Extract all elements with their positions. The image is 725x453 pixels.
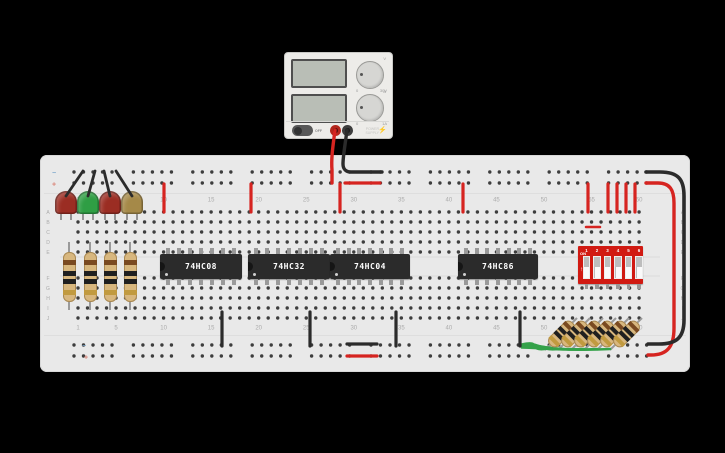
ic-pin — [210, 248, 214, 254]
ic-pin — [389, 279, 393, 285]
ic-pin — [517, 248, 521, 254]
resistor-vertical[interactable] — [104, 252, 117, 302]
ic-pin — [254, 279, 258, 285]
ic-pin — [276, 248, 280, 254]
ic-74hc86[interactable]: 74HC86 — [458, 254, 538, 279]
ic-pin — [254, 248, 258, 254]
ic-label: 74HC86 — [458, 262, 538, 271]
dip-slider[interactable] — [604, 256, 612, 279]
dip-pin — [585, 284, 589, 289]
ic-pin — [320, 279, 324, 285]
dip-number: 6 — [634, 248, 644, 253]
resistor-band — [63, 271, 76, 276]
dip-slider[interactable] — [614, 256, 622, 279]
led-yellow[interactable] — [121, 191, 143, 214]
dip-slider-handle[interactable] — [595, 267, 600, 278]
ic-pin — [507, 279, 511, 285]
dip-switch[interactable]: ON ↑ 1 2 3 4 5 6 — [578, 246, 643, 284]
resistor-vertical[interactable] — [84, 252, 97, 302]
dip-slider-handle[interactable] — [616, 267, 621, 278]
ic-pin — [517, 279, 521, 285]
ic-pin — [287, 279, 291, 285]
ic-pin — [400, 248, 404, 254]
ic-pin1-dot — [335, 273, 338, 276]
ic-pin — [347, 248, 351, 254]
resistor-band — [63, 279, 76, 284]
led-green[interactable] — [77, 191, 99, 214]
resistor-band — [104, 271, 117, 276]
dip-number: 3 — [603, 248, 613, 253]
ic-pin — [232, 248, 236, 254]
resistor-band — [124, 260, 137, 265]
ic-pin — [475, 248, 479, 254]
ic-pin — [298, 248, 302, 254]
ic-pin — [389, 248, 393, 254]
ic-pin — [276, 279, 280, 285]
ic-pin — [485, 248, 489, 254]
ic-pin — [199, 279, 203, 285]
dip-pin — [616, 284, 620, 289]
dip-slider[interactable] — [593, 256, 601, 279]
led-red-2[interactable] — [99, 191, 121, 214]
ic-pin — [496, 279, 500, 285]
ic-pin — [347, 279, 351, 285]
ic-pin — [265, 248, 269, 254]
resistor-band — [84, 290, 97, 295]
ic-74hc08[interactable]: 74HC08 — [160, 254, 242, 279]
dip-slider[interactable] — [635, 256, 643, 279]
ic-pin — [357, 279, 361, 285]
ic-pin — [265, 279, 269, 285]
ic-pin — [210, 279, 214, 285]
ic-pin — [379, 279, 383, 285]
led-red-1[interactable] — [55, 191, 77, 214]
resistor-band — [84, 279, 97, 284]
dip-pin — [606, 284, 610, 289]
ic-pin — [528, 279, 532, 285]
ic-pin — [188, 248, 192, 254]
resistor-band — [124, 279, 137, 284]
dip-number: 5 — [624, 248, 634, 253]
ic-pin — [475, 279, 479, 285]
ic-pin — [232, 279, 236, 285]
ic-74hc32[interactable]: 74HC32 — [248, 254, 330, 279]
dip-pin — [627, 284, 631, 289]
ic-pin — [221, 279, 225, 285]
ic-pin — [485, 279, 489, 285]
ic-pin — [298, 279, 302, 285]
resistor-band — [84, 271, 97, 276]
ic-pin — [368, 279, 372, 285]
ic-pin — [166, 248, 170, 254]
ic-pin — [177, 248, 181, 254]
dip-number: 4 — [613, 248, 623, 253]
ic-pin — [496, 248, 500, 254]
ic-pin1-dot — [253, 273, 256, 276]
ic-pin — [357, 248, 361, 254]
ic-label: 74HC08 — [160, 262, 242, 271]
ic-pin — [320, 248, 324, 254]
ic-pin — [188, 279, 192, 285]
ic-pin — [309, 248, 313, 254]
dip-number: 2 — [592, 248, 602, 253]
dip-number: 1 — [582, 248, 592, 253]
ic-pin1-dot — [463, 273, 466, 276]
ic-pin — [166, 279, 170, 285]
dip-slider[interactable] — [583, 256, 591, 279]
ic-74hc04[interactable]: 74HC04 — [330, 254, 410, 279]
circuit-canvas: −+−+AABBCCDDEEFFGGHHIIJJ1155101015152020… — [0, 0, 725, 453]
dip-pin — [637, 284, 641, 289]
dip-slider-handle[interactable] — [637, 267, 642, 278]
resistor-band — [104, 260, 117, 265]
resistor-band — [104, 290, 117, 295]
ic-pin — [309, 279, 313, 285]
dip-slider-handle[interactable] — [626, 267, 631, 278]
resistor-vertical[interactable] — [124, 252, 137, 302]
ic-pin — [336, 248, 340, 254]
ic-pin — [177, 279, 181, 285]
ic-pin — [400, 279, 404, 285]
ic-label: 74HC32 — [248, 262, 330, 271]
ic-pin — [287, 248, 291, 254]
resistor-band — [104, 279, 117, 284]
dip-slider-handle[interactable] — [605, 267, 610, 278]
dip-slider-handle[interactable] — [584, 267, 589, 278]
resistor-band — [84, 260, 97, 265]
dip-slider[interactable] — [625, 256, 633, 279]
ic-pin — [336, 279, 340, 285]
ic-label: 74HC04 — [330, 262, 410, 271]
resistor-band — [63, 260, 76, 265]
ic-pin — [464, 248, 468, 254]
dip-pin — [595, 284, 599, 289]
ic-pin — [507, 248, 511, 254]
ic-pin — [379, 248, 383, 254]
ic-pin — [199, 248, 203, 254]
resistor-band — [63, 290, 76, 295]
ic-pin — [221, 248, 225, 254]
resistor-band — [124, 290, 137, 295]
ic-pin — [368, 248, 372, 254]
resistor-band — [124, 271, 137, 276]
ic-pin — [464, 279, 468, 285]
ic-pin1-dot — [165, 273, 168, 276]
resistor-vertical[interactable] — [63, 252, 76, 302]
ic-pin — [528, 248, 532, 254]
